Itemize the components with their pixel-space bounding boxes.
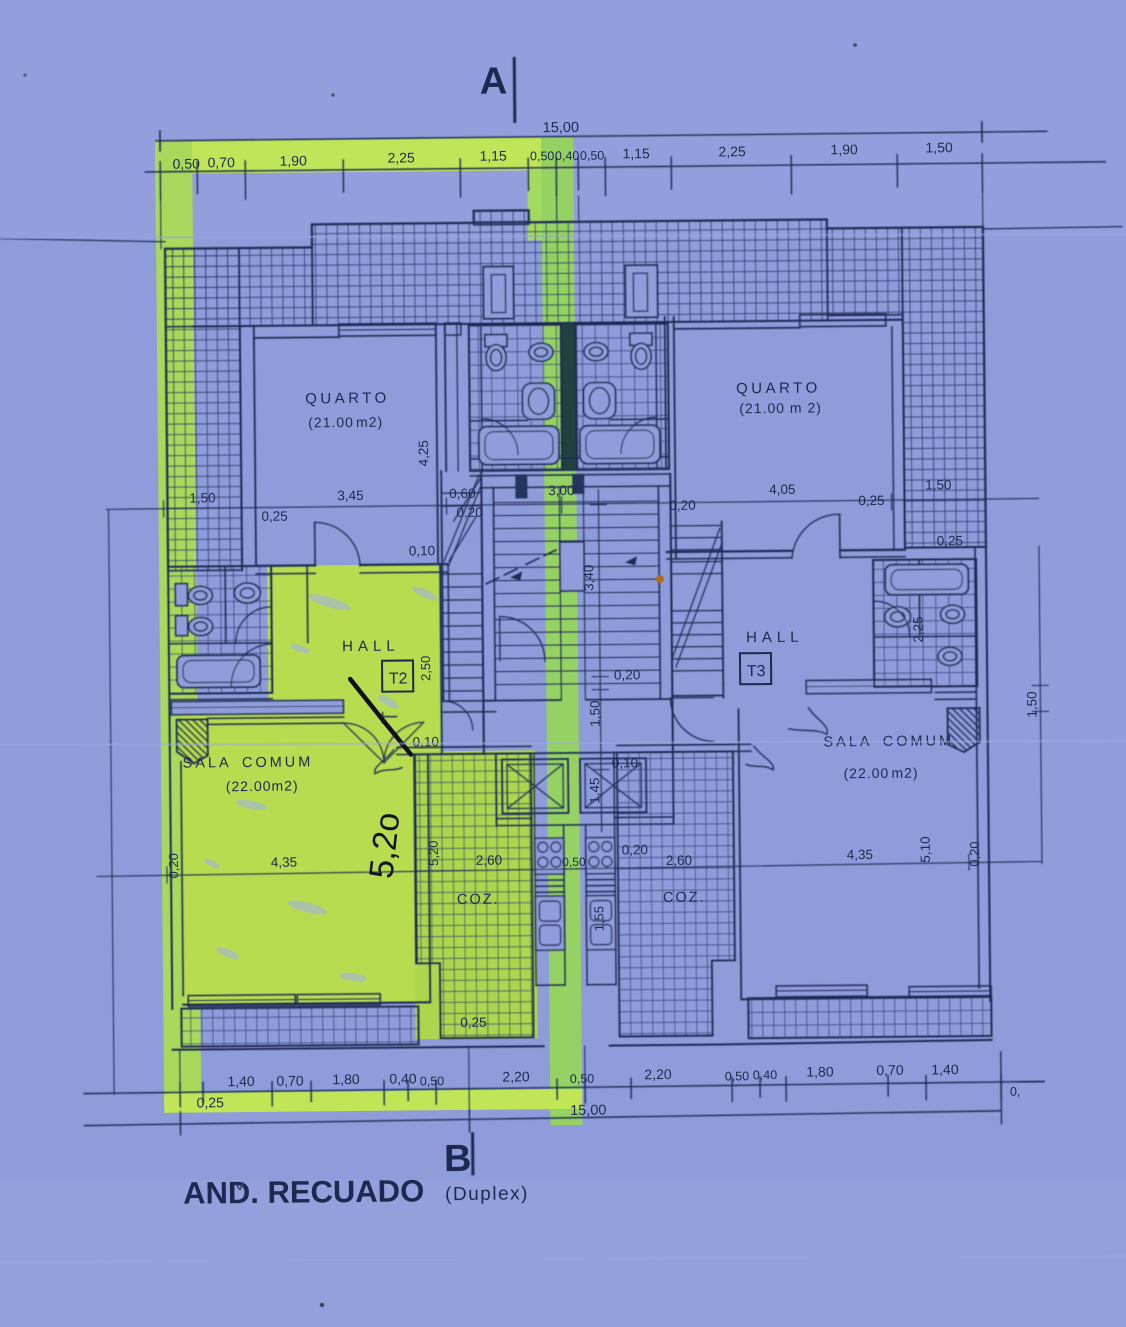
svg-text:3,00: 3,00 xyxy=(548,483,574,498)
svg-text:0,50: 0,50 xyxy=(570,1072,595,1086)
svg-text:1,45: 1,45 xyxy=(587,777,602,803)
svg-text:0,20: 0,20 xyxy=(614,667,640,682)
svg-text:0,50: 0,50 xyxy=(580,149,605,163)
svg-text:T2: T2 xyxy=(389,670,408,687)
svg-text:1,90: 1,90 xyxy=(830,141,858,157)
svg-text:4,25: 4,25 xyxy=(416,440,431,466)
svg-text:2,20: 2,20 xyxy=(502,1068,530,1084)
svg-text:0,70: 0,70 xyxy=(208,154,236,170)
svg-text:HALL: HALL xyxy=(746,629,804,647)
svg-text:(22.00 m2): (22.00 m2) xyxy=(844,765,919,782)
svg-text:2,60: 2,60 xyxy=(476,853,502,868)
svg-text:1,15: 1,15 xyxy=(479,148,507,164)
svg-text:1,80: 1,80 xyxy=(806,1063,834,1079)
svg-text:0,25: 0,25 xyxy=(858,493,884,508)
svg-text:1,40: 1,40 xyxy=(227,1073,255,1089)
svg-text:0,50: 0,50 xyxy=(562,855,586,869)
svg-text:5,2o: 5,2o xyxy=(362,811,407,881)
svg-text:0,50: 0,50 xyxy=(725,1069,750,1083)
svg-text:4,35: 4,35 xyxy=(271,855,297,870)
svg-text:0,10: 0,10 xyxy=(409,543,435,558)
svg-text:A: A xyxy=(480,61,508,103)
svg-text:15,00: 15,00 xyxy=(543,120,579,136)
svg-text:1,50: 1,50 xyxy=(925,477,951,492)
svg-text:0,20: 0,20 xyxy=(456,505,482,520)
svg-text:T3: T3 xyxy=(747,663,766,680)
svg-text:(22.00m2): (22.00m2) xyxy=(226,778,299,795)
svg-text:2,25: 2,25 xyxy=(387,149,415,165)
svg-text:0,50: 0,50 xyxy=(420,1074,445,1088)
svg-text:0,20: 0,20 xyxy=(669,498,695,513)
svg-text:0,25: 0,25 xyxy=(197,1094,225,1110)
svg-text:0,10: 0,10 xyxy=(413,734,439,749)
svg-text:4,35: 4,35 xyxy=(847,847,873,862)
svg-text:B: B xyxy=(444,1138,472,1180)
svg-text:COZ.: COZ. xyxy=(663,890,706,906)
svg-text:1,40: 1,40 xyxy=(931,1061,959,1077)
svg-text:0,25: 0,25 xyxy=(937,533,963,548)
svg-text:(21.00 m2): (21.00 m2) xyxy=(308,414,383,431)
svg-text:1,50: 1,50 xyxy=(1024,691,1039,717)
svg-text:0,50: 0,50 xyxy=(530,149,555,163)
svg-text:1,55: 1,55 xyxy=(591,906,606,931)
svg-text:0,60: 0,60 xyxy=(449,486,475,501)
svg-text:0,40: 0,40 xyxy=(753,1068,778,1082)
svg-text:SALA COMUM: SALA COMUM xyxy=(183,754,314,771)
svg-text:0,20: 0,20 xyxy=(967,841,982,866)
svg-text:(Duplex): (Duplex) xyxy=(445,1183,529,1205)
svg-text:AND. RECUADO: AND. RECUADO xyxy=(183,1173,424,1210)
svg-text:15,00: 15,00 xyxy=(570,1103,606,1119)
svg-text:0,40: 0,40 xyxy=(389,1070,417,1086)
svg-text:5,20: 5,20 xyxy=(426,841,441,866)
svg-text:1,80: 1,80 xyxy=(332,1071,360,1087)
svg-text:5,10: 5,10 xyxy=(918,836,933,862)
svg-text:0,50: 0,50 xyxy=(173,155,201,171)
svg-text:1,90: 1,90 xyxy=(279,152,307,168)
svg-text:4,05: 4,05 xyxy=(769,482,795,497)
svg-text:3,45: 3,45 xyxy=(337,488,363,503)
svg-text:3,40: 3,40 xyxy=(581,565,596,591)
svg-text:1,15: 1,15 xyxy=(622,145,650,161)
svg-text:QUARTO: QUARTO xyxy=(736,380,821,398)
svg-text:0,25: 0,25 xyxy=(261,509,287,524)
svg-text:0,: 0, xyxy=(1010,1085,1021,1099)
svg-text:0,70: 0,70 xyxy=(276,1073,304,1089)
svg-text:0,70: 0,70 xyxy=(876,1062,904,1078)
svg-text:2,20: 2,20 xyxy=(644,1066,672,1082)
svg-text:0,40: 0,40 xyxy=(555,149,580,163)
svg-text:COZ.: COZ. xyxy=(457,892,500,908)
svg-text:1,50: 1,50 xyxy=(925,139,953,155)
svg-text:1,50: 1,50 xyxy=(587,700,602,726)
svg-text:0,10: 0,10 xyxy=(612,755,638,770)
svg-text:1,50: 1,50 xyxy=(189,490,215,505)
svg-text:0,20: 0,20 xyxy=(622,842,648,857)
svg-text:2,25: 2,25 xyxy=(718,143,746,159)
svg-text:0,20: 0,20 xyxy=(166,853,181,878)
svg-text:HALL: HALL xyxy=(342,638,400,656)
svg-text:2,25: 2,25 xyxy=(911,616,926,642)
svg-text:QUARTO: QUARTO xyxy=(305,390,390,408)
svg-text:2,50: 2,50 xyxy=(418,656,433,681)
svg-text:0,25: 0,25 xyxy=(460,1015,486,1030)
svg-text:2,60: 2,60 xyxy=(666,853,692,868)
svg-text:(21.00 m 2): (21.00 m 2) xyxy=(739,400,822,417)
